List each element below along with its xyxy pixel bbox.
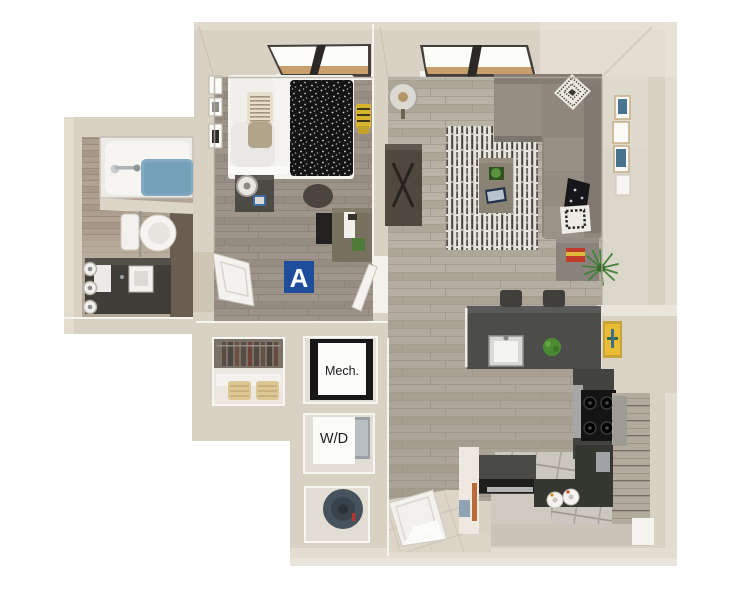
svg-text:A: A — [290, 263, 309, 293]
svg-text:W/D: W/D — [320, 431, 348, 447]
svg-text:Mech.: Mech. — [325, 364, 359, 378]
